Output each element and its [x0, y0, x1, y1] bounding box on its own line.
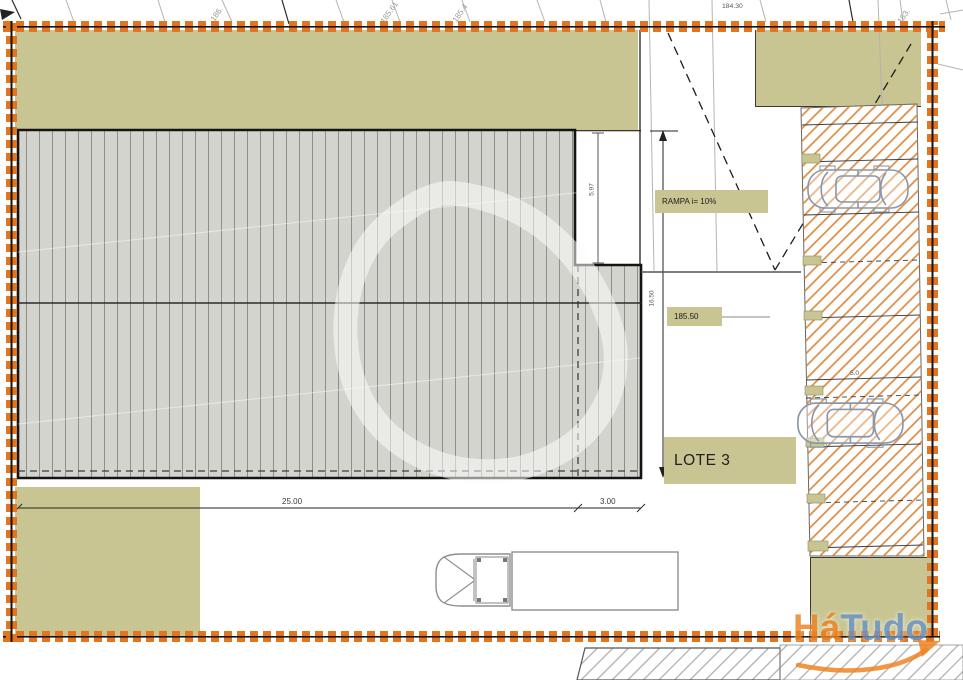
level-label: 185.50 — [674, 313, 698, 321]
lot-label: LOTE 3 — [674, 452, 730, 470]
bottom-hatch-areas — [577, 645, 963, 680]
parking-dividers — [802, 122, 923, 548]
dimension-front-text: 16.50 — [649, 285, 656, 313]
watermark-logo-prefix: Há — [793, 607, 840, 648]
watermark-logo: HáTudo — [793, 607, 928, 649]
dimension-bay-text: 5.0 — [850, 370, 859, 377]
dimension-width-text: 25.00 — [282, 497, 302, 506]
warehouse-building — [18, 130, 641, 478]
car-icon — [798, 399, 903, 447]
ramp-label-band: RAMPA i= 10% — [655, 190, 768, 213]
lot-border-right — [927, 21, 938, 636]
car-icon — [808, 166, 908, 212]
level-label-band: 185.50 — [667, 307, 722, 326]
green-zone-top-right — [755, 30, 921, 107]
watermark-ring-icon — [345, 193, 615, 471]
truck-icon — [436, 552, 678, 610]
dimension-depth-text: 5.97 — [589, 176, 596, 204]
ramp-label: RAMPA i= 10% — [662, 198, 716, 206]
watermark-logo-suffix: Tudo — [840, 607, 928, 648]
site-plan: RAMPA i= 10% 185.50 LOTE 3 25.00 3.00 5.… — [0, 0, 963, 680]
contour-label-18430: 184.30 — [722, 3, 743, 10]
roof-slope-lines — [18, 186, 640, 424]
parking-markers — [802, 154, 828, 551]
dimension-offset-text: 3.00 — [600, 497, 616, 506]
lot-border-top — [3, 21, 945, 32]
lot-label-band: LOTE 3 — [664, 437, 796, 484]
green-strip-top — [15, 30, 638, 130]
north-marker-icon — [0, 9, 15, 20]
green-zone-bottom-left — [15, 487, 200, 637]
lot-border-left — [6, 21, 17, 642]
parking-strip — [798, 104, 924, 556]
